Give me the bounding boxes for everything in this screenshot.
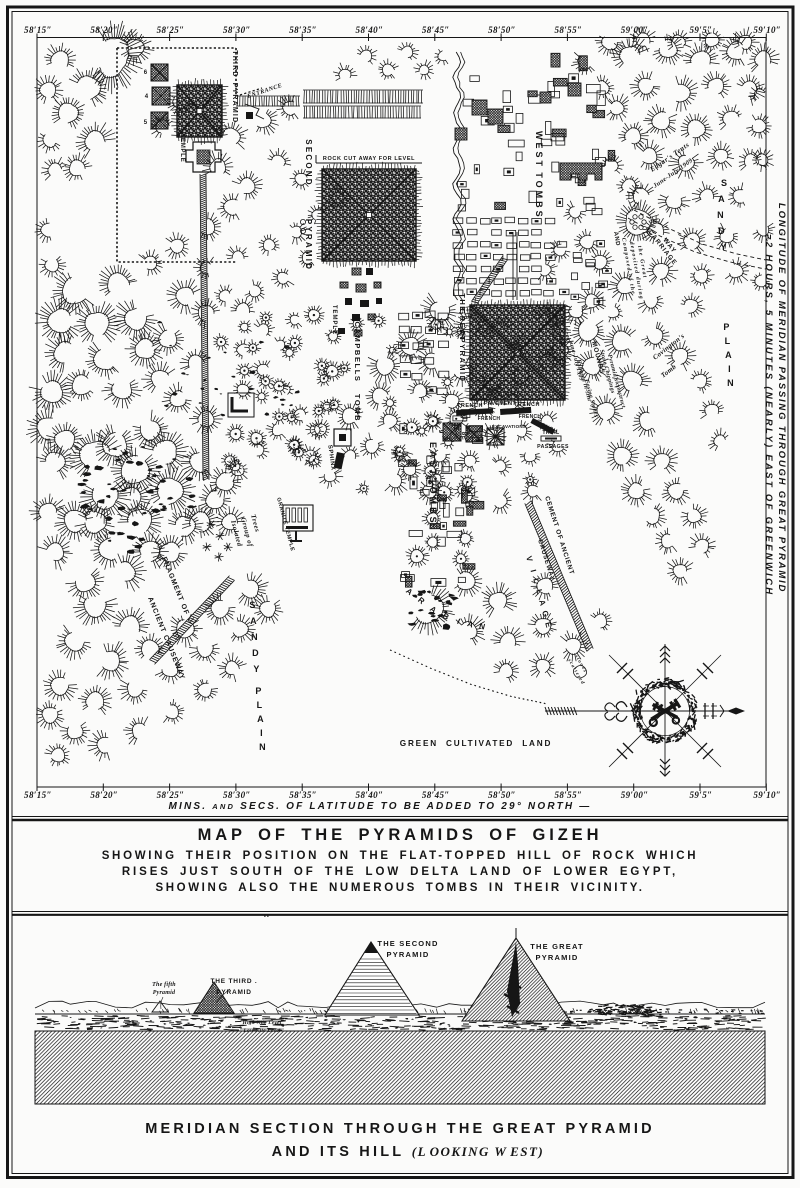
svg-text:D: D xyxy=(252,648,260,658)
svg-text:Y: Y xyxy=(253,664,260,674)
svg-text:I: I xyxy=(728,364,732,374)
svg-text:58′30″: 58′30″ xyxy=(223,790,251,800)
svg-text:58′35″: 58′35″ xyxy=(289,25,317,35)
svg-text:P: P xyxy=(723,322,730,332)
svg-text:58′45″: 58′45″ xyxy=(422,790,450,800)
svg-text:S: S xyxy=(721,178,727,188)
svg-text:58′55″: 58′55″ xyxy=(554,25,582,35)
svg-text:L: L xyxy=(725,336,732,346)
svg-text:THE SECOND: THE SECOND xyxy=(377,939,438,948)
svg-text:4: 4 xyxy=(145,94,150,100)
svg-text:58′40″: 58′40″ xyxy=(356,25,384,35)
svg-text:58′45″: 58′45″ xyxy=(422,25,450,35)
svg-text:PYRAMID: PYRAMID xyxy=(458,337,467,382)
svg-text:TOMBS: TOMBS xyxy=(534,172,544,219)
svg-text:Pyramid: Pyramid xyxy=(153,990,176,996)
svg-text:=2 HOURS, 5 MINUTES (NEARLY) E: =2 HOURS, 5 MINUTES (NEARLY) EAST OF GRE… xyxy=(763,234,774,596)
svg-text:N: N xyxy=(727,378,735,388)
svg-text:N: N xyxy=(259,742,267,752)
svg-text:CAMPBELLS: CAMPBELLS xyxy=(353,321,362,382)
svg-text:AND ITS HILL: AND ITS HILL xyxy=(272,1144,405,1160)
svg-text:58′25″: 58′25″ xyxy=(157,790,185,800)
svg-text:RISES JUST SOUTH OF THE LOW DE: RISES JUST SOUTH OF THE LOW DELTA LAND O… xyxy=(122,866,678,878)
svg-text:PYRAMID: PYRAMID xyxy=(387,950,430,959)
svg-text:TEMPLE: TEMPLE xyxy=(179,133,185,162)
svg-text:58′50″: 58′50″ xyxy=(488,790,516,800)
svg-text:58′40″: 58′40″ xyxy=(356,790,384,800)
svg-text:N: N xyxy=(717,210,725,220)
svg-text:MAP OF THE PYRAMIDS OF GIZEH: MAP OF THE PYRAMIDS OF GIZEH xyxy=(198,826,603,844)
svg-text:58′35″: 58′35″ xyxy=(289,790,317,800)
svg-text:TRIAL: TRIAL xyxy=(542,430,560,436)
svg-text:L: L xyxy=(257,700,264,710)
svg-text:LONGITUDE OF MERIDIAN PASSING: LONGITUDE OF MERIDIAN PASSING THROUGH GR… xyxy=(776,203,787,593)
svg-text:MINS. AND SECS. OF LATITUDE TO: MINS. AND SECS. OF LATITUDE TO BE ADDED … xyxy=(169,801,592,812)
svg-text:PYRAMID: PYRAMID xyxy=(216,989,252,996)
svg-text:THIRD: THIRD xyxy=(231,50,238,77)
svg-text:58′15″: 58′15″ xyxy=(24,25,52,35)
svg-text:9: 9 xyxy=(437,430,444,435)
svg-text:59′00″: 59′00″ xyxy=(621,790,649,800)
svg-text:A: A xyxy=(718,194,726,204)
svg-text:WEST: WEST xyxy=(534,131,544,169)
svg-text:MERIDIAN SECTION THROUGH THE G: MERIDIAN SECTION THROUGH THE GREAT PYRAM… xyxy=(145,1121,655,1137)
svg-text:SHOWING THEIR POSITION ON THE: SHOWING THEIR POSITION ON THE FLAT-TOPPE… xyxy=(102,850,699,862)
svg-text:The fifth: The fifth xyxy=(152,982,176,988)
svg-text:59′10″: 59′10″ xyxy=(753,790,781,800)
svg-text:THE THIRD .: THE THIRD . xyxy=(210,978,257,985)
svg-text:TOMBS: TOMBS xyxy=(428,478,438,525)
svg-text:(L OOKING W EST): (L OOKING W EST) xyxy=(412,1144,544,1159)
svg-text:••: •• xyxy=(264,914,270,920)
svg-text:6: 6 xyxy=(144,70,149,76)
svg-text:58′25″: 58′25″ xyxy=(157,25,185,35)
svg-text:ROCK CUT AWAY FOR LEVEL: ROCK CUT AWAY FOR LEVEL xyxy=(323,156,415,162)
svg-text:THE GREAT: THE GREAT xyxy=(530,942,584,951)
svg-text:A: A xyxy=(725,350,733,360)
svg-text:FRENCH: FRENCH xyxy=(478,416,501,422)
svg-text:GREEN CULTIVATED LAND: GREEN CULTIVATED LAND xyxy=(400,739,552,748)
svg-text:SECOND: SECOND xyxy=(304,139,313,186)
svg-text:5: 5 xyxy=(144,120,149,126)
svg-text:N: N xyxy=(251,632,259,642)
svg-text:58′15″: 58′15″ xyxy=(24,790,52,800)
svg-text:58′20″: 58′20″ xyxy=(90,790,118,800)
svg-text:PYRAMID: PYRAMID xyxy=(231,83,238,124)
svg-text:58′30″: 58′30″ xyxy=(223,25,251,35)
svg-text:TEMPLE: TEMPLE xyxy=(331,305,337,335)
svg-text:A: A xyxy=(257,714,265,724)
svg-text:I: I xyxy=(260,728,264,738)
svg-text:59′5″: 59′5″ xyxy=(689,790,712,800)
svg-text:PYRAMID: PYRAMID xyxy=(536,953,579,962)
svg-text:58′50″: 58′50″ xyxy=(488,25,516,35)
svg-text:P: P xyxy=(255,686,262,696)
svg-text:EAST: EAST xyxy=(428,442,438,478)
svg-text:SHOWING ALSO THE NUMEROUS TOMB: SHOWING ALSO THE NUMEROUS TOMBS IN THEIR… xyxy=(156,882,645,894)
svg-text:59′10″: 59′10″ xyxy=(753,25,781,35)
svg-text:58′55″: 58′55″ xyxy=(554,790,582,800)
